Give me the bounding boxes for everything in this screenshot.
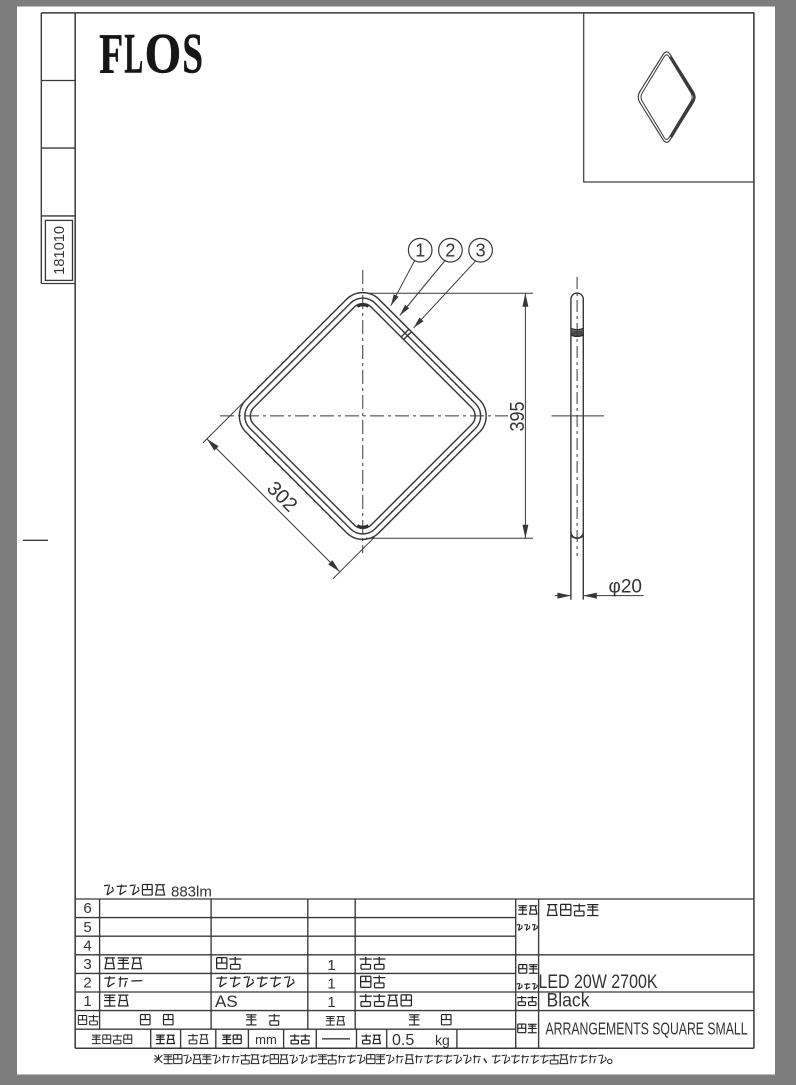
- svg-text:1: 1: [327, 975, 335, 992]
- svg-text:4: 4: [83, 937, 91, 954]
- svg-text:L: L: [124, 22, 143, 85]
- svg-text:181010: 181010: [51, 226, 68, 275]
- svg-text:2: 2: [83, 975, 91, 992]
- svg-text:6: 6: [83, 900, 91, 917]
- svg-text:1: 1: [415, 240, 425, 260]
- svg-text:1: 1: [327, 994, 335, 1011]
- svg-text:Black: Black: [547, 991, 590, 1012]
- svg-text:5: 5: [83, 919, 91, 936]
- svg-text:φ20: φ20: [609, 576, 642, 597]
- svg-text:0.5: 0.5: [392, 1032, 414, 1049]
- svg-text:395: 395: [507, 402, 529, 432]
- svg-text:1: 1: [327, 957, 335, 974]
- svg-text:2: 2: [445, 240, 455, 260]
- svg-text:883lm: 883lm: [171, 884, 212, 901]
- svg-text:AS: AS: [215, 992, 238, 1011]
- svg-text:S: S: [182, 22, 203, 85]
- svg-text:F: F: [99, 22, 123, 85]
- svg-text:kg: kg: [435, 1032, 450, 1048]
- svg-text:3: 3: [476, 240, 486, 260]
- svg-text:mm: mm: [255, 1032, 277, 1047]
- svg-text:O: O: [145, 22, 182, 85]
- svg-text:3: 3: [83, 956, 91, 973]
- svg-text:ARRANGEMENTS SQUARE SMALL: ARRANGEMENTS SQUARE SMALL: [546, 1019, 748, 1039]
- svg-text:1: 1: [83, 993, 91, 1010]
